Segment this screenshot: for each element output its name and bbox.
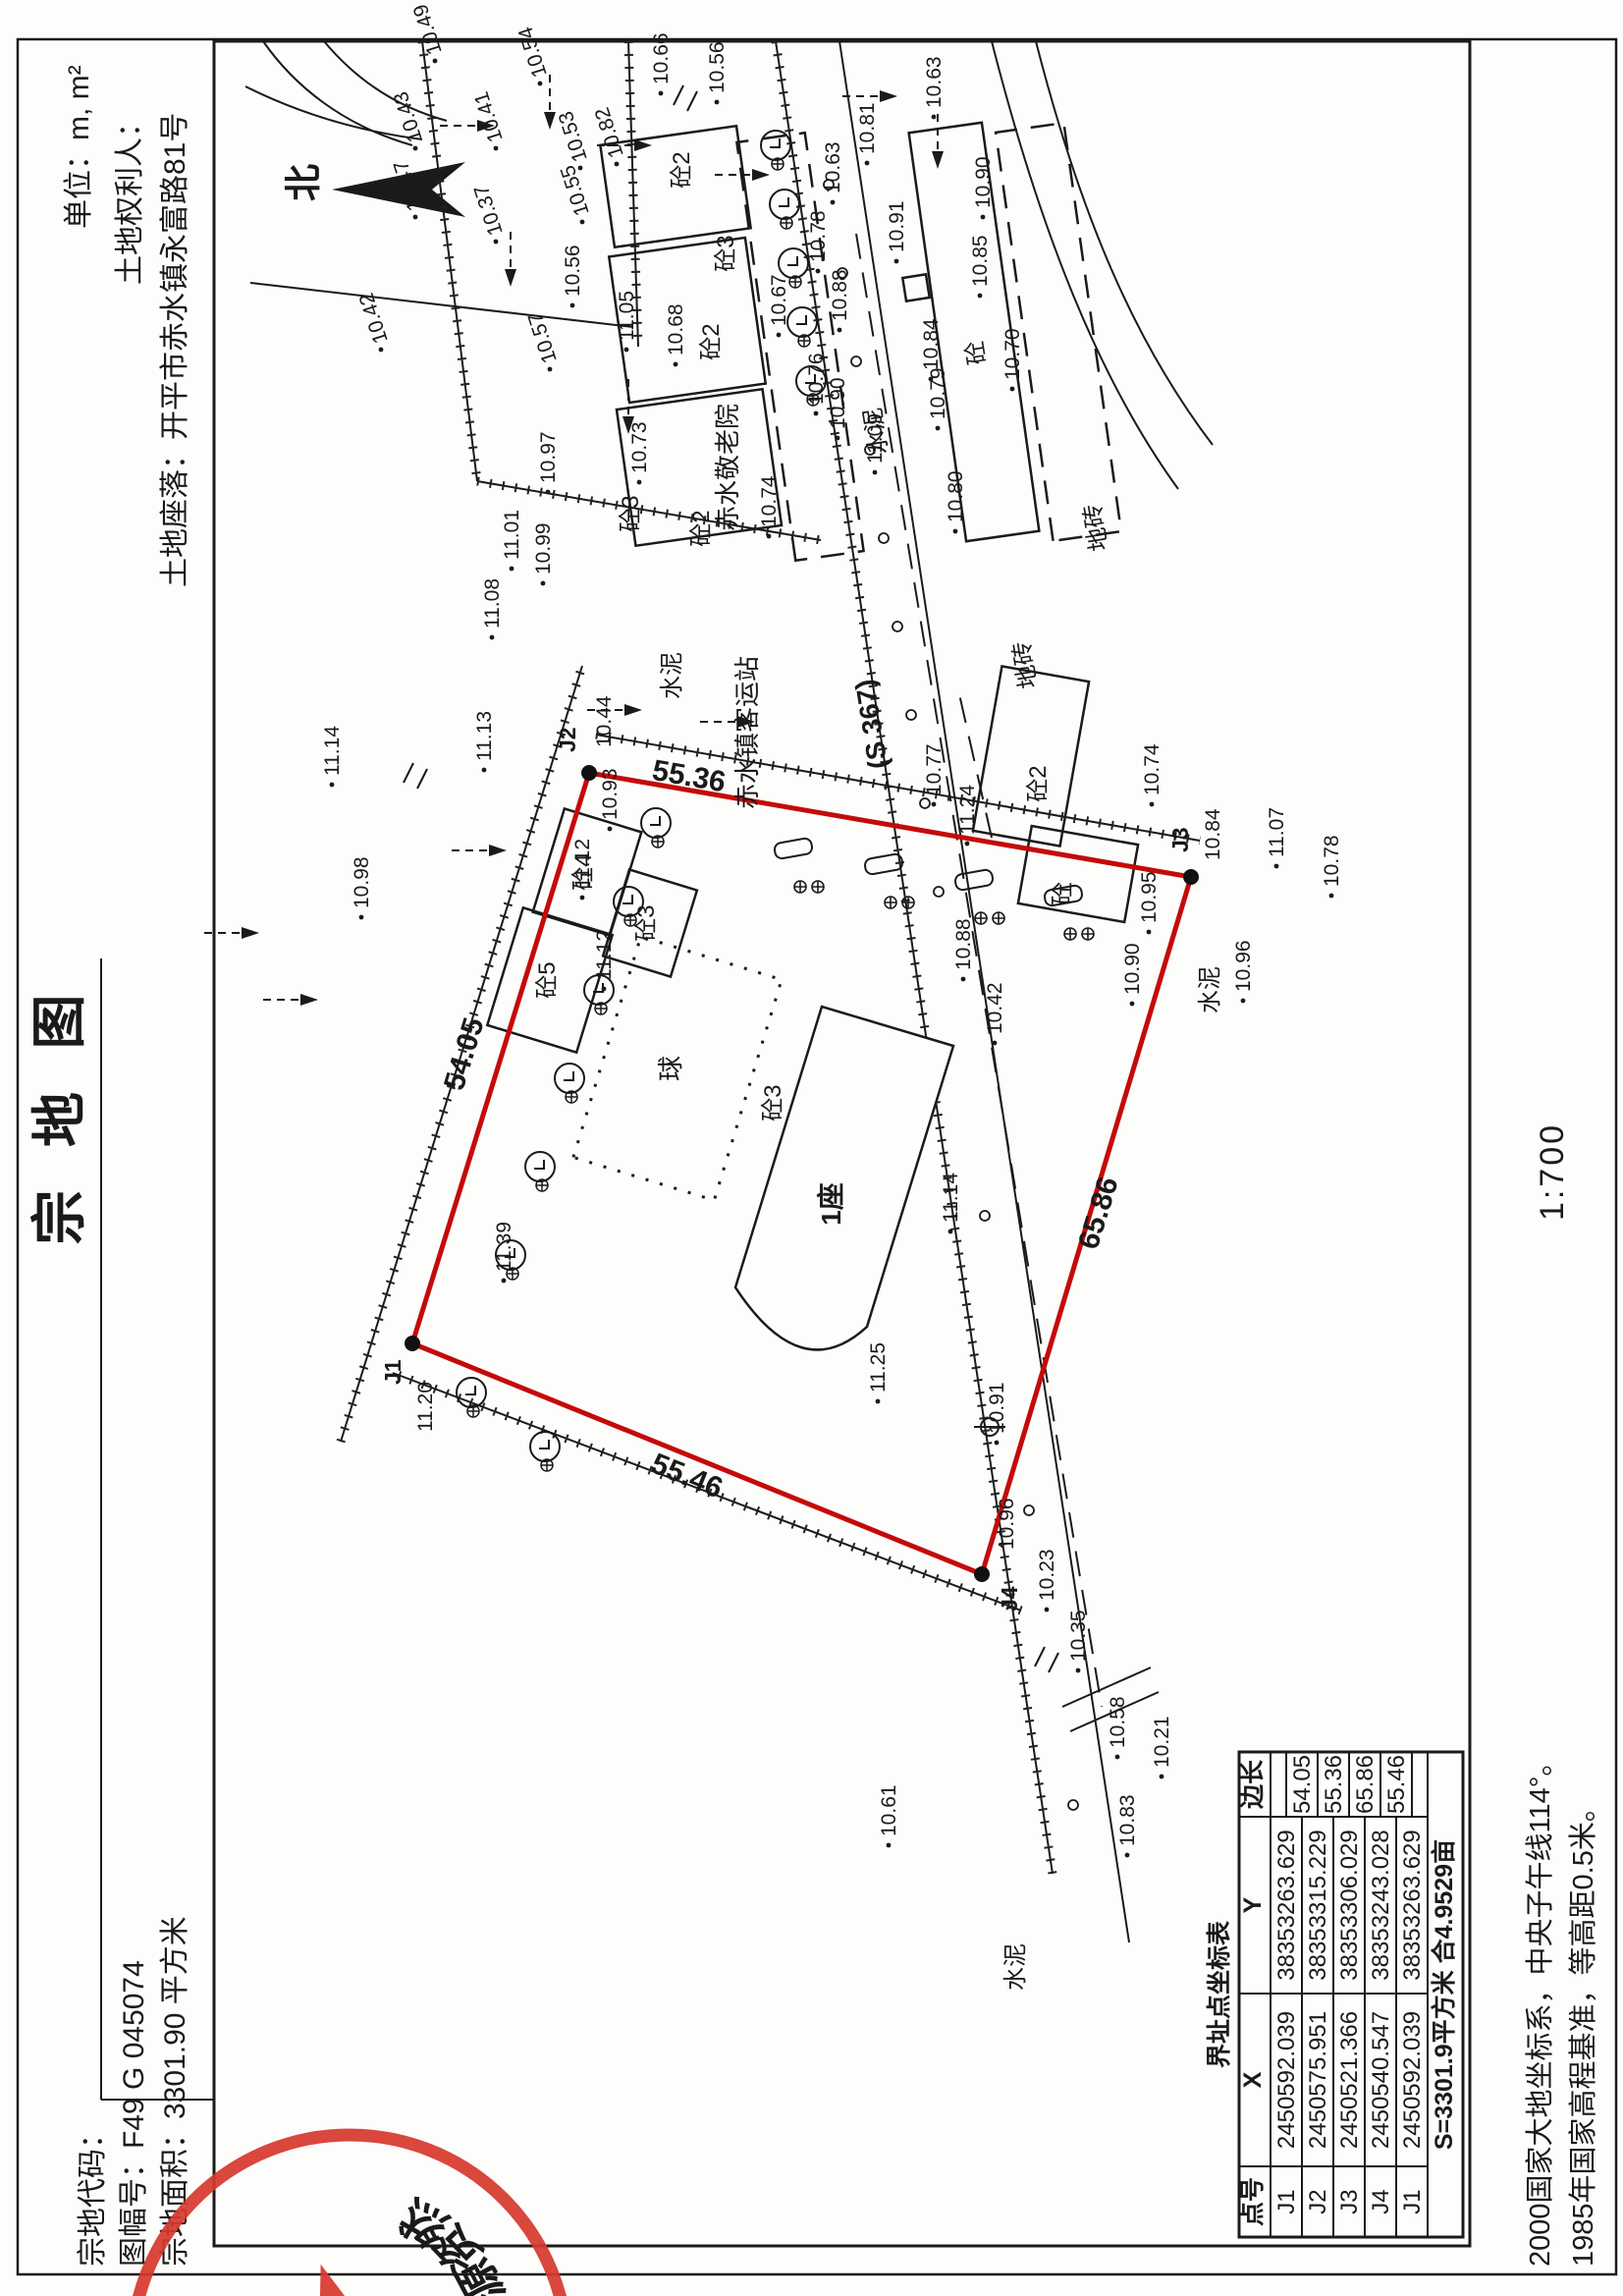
pole-symbol — [975, 912, 987, 924]
map-feature-label: 水泥 — [659, 652, 685, 699]
table-cell-point: J2 — [1305, 2189, 1331, 2214]
map-shape — [779, 197, 788, 206]
spot-elevation-value: 11.39 — [493, 1222, 515, 1272]
map-feature-label: 砼 — [1050, 882, 1076, 905]
map-shape — [836, 436, 840, 441]
spot-elevation-value: 11.01 — [501, 510, 523, 560]
pole-symbol — [1064, 928, 1076, 940]
edge-length-label: 55.36 — [650, 754, 729, 799]
map-shape — [993, 1041, 998, 1046]
spot-elevation-value: 10.37 — [470, 182, 508, 238]
pole-symbol — [1082, 928, 1094, 940]
datum-note-1: 2000国家大地坐标系，中央子午线114°。 — [1524, 1748, 1556, 2267]
tree-icon — [555, 1064, 584, 1103]
table-cell-y: 38353263.629 — [1273, 1830, 1300, 1981]
spot-elevation: 10.99 — [532, 522, 555, 585]
map-shape — [413, 146, 418, 151]
map-shape — [876, 1399, 881, 1404]
map-shape — [494, 146, 499, 151]
flow-arrow-icon — [544, 75, 556, 130]
spot-elevation: 10.74 — [1141, 743, 1163, 806]
spot-elevation-value: 10.90 — [1121, 943, 1144, 995]
pole-symbol — [902, 897, 914, 908]
spot-elevation: 10.97 — [537, 431, 560, 494]
spot-elevation-value: 10.84 — [920, 318, 943, 370]
map-line — [687, 91, 697, 111]
spot-elevation: 11.05 — [616, 291, 638, 352]
boundary-point-J3 — [1183, 869, 1199, 885]
tree-icon — [787, 307, 817, 347]
spot-elevation: 11.25 — [867, 1342, 890, 1403]
manhole-icon — [906, 710, 916, 720]
spot-elevation-value: 11.08 — [481, 578, 504, 629]
spot-elevation: 10.57 — [524, 309, 562, 371]
edge-length-label: 65.86 — [1072, 1173, 1125, 1252]
spot-elevation: 10.78 — [1321, 835, 1343, 898]
table-cell-point: J1 — [1399, 2189, 1426, 2214]
map-shape — [770, 190, 799, 219]
map-shape — [894, 259, 899, 264]
spot-elevation: 10.81 — [856, 102, 879, 165]
map-shape — [413, 215, 418, 220]
boundary-point-label: J4 — [997, 1586, 1022, 1612]
spot-elevation-value: 11.14 — [940, 1173, 962, 1223]
map-shape — [505, 269, 516, 287]
map-shape — [330, 783, 335, 788]
map-shape — [564, 1071, 573, 1080]
map-shape — [650, 816, 660, 825]
sheet-footer: 1:700 2000国家大地坐标系，中央子午线114°。 1985年国家高程基准… — [1524, 1122, 1599, 2267]
spot-elevation-value: 10.56 — [562, 245, 584, 297]
spot-elevation: 10.88 — [952, 918, 975, 981]
map-shape — [1329, 894, 1334, 899]
table-header: X — [1239, 2071, 1267, 2088]
official-stamp: 然资源局 — [132, 2135, 568, 2296]
map-feature-label: 砼2 — [669, 151, 695, 188]
spot-elevation: 10.53 — [555, 108, 592, 170]
map-shape — [1115, 1755, 1120, 1760]
spot-elevation-value: 11.13 — [473, 711, 496, 761]
spot-elevation-value: 10.85 — [969, 235, 992, 287]
map-shape — [767, 534, 772, 539]
map-shape — [1274, 864, 1279, 869]
map-shape — [634, 139, 652, 151]
spot-elevation: 10.73 — [628, 421, 651, 484]
boundary-point-elevation: 10.44 — [593, 695, 616, 747]
spot-elevation-value: 10.90 — [972, 156, 995, 208]
manhole-icon — [980, 1211, 990, 1221]
spot-elevation: 10.68 — [665, 303, 687, 366]
map-shape — [961, 977, 966, 982]
map-shape — [873, 470, 878, 475]
spot-elevation: 10.63 — [923, 56, 946, 119]
boundary-point-label: J3 — [1167, 827, 1193, 852]
edge-length-label: 54.05 — [438, 1013, 491, 1093]
map-shape — [932, 802, 937, 807]
spot-elevation-value: 10.98 — [351, 856, 373, 908]
map-line — [1036, 41, 1213, 445]
map-shape — [932, 151, 944, 169]
datum-note-2: 1985年国家高程基准，等高距0.5米。 — [1567, 1793, 1599, 2267]
map-shape — [489, 845, 507, 856]
map-shape — [674, 362, 678, 367]
map-shape — [379, 348, 384, 353]
table-cell-point: J4 — [1368, 2189, 1394, 2214]
map-shape — [622, 895, 632, 903]
table-cell-y: 38353315.229 — [1305, 1830, 1331, 1981]
spot-elevation-value: 10.41 — [470, 88, 508, 144]
map-shape — [615, 162, 620, 167]
spot-elevation-value: 10.67 — [768, 274, 790, 326]
map-feature-label: 砼2 — [698, 323, 725, 359]
spot-elevation-value: 10.61 — [878, 1784, 900, 1836]
manhole-icon — [1024, 1505, 1034, 1515]
map-shape — [814, 411, 819, 416]
map-feature-label: 1座 — [815, 1182, 846, 1226]
flow-arrow-icon — [842, 90, 897, 102]
spot-elevation-value: 10.95 — [1138, 871, 1161, 923]
map-shape — [490, 635, 495, 640]
map-shape — [570, 303, 575, 308]
spot-elevation-value: 10.93 — [599, 768, 622, 820]
spot-elevation-value: 10.78 — [807, 210, 830, 262]
map-shape — [555, 1064, 584, 1093]
bus-bay-symbol — [774, 838, 813, 859]
spot-elevation: 10.37 — [470, 182, 508, 244]
map-line — [417, 769, 427, 789]
spot-elevation-value: 10.43 — [390, 88, 427, 144]
manhole-icon — [879, 533, 889, 543]
spot-elevation: 11.01 — [501, 510, 523, 571]
table-header: 点号 — [1239, 2177, 1267, 2226]
map-shape — [1130, 1002, 1135, 1007]
map-line — [674, 85, 683, 105]
spot-elevation-value: 10.53 — [555, 108, 592, 164]
building-outline — [902, 274, 929, 301]
spot-elevation-value: 11.25 — [867, 1342, 890, 1393]
manhole-icon — [851, 356, 861, 366]
map-shape — [300, 994, 318, 1006]
map-shape — [530, 1432, 560, 1461]
map-sheet-number: 图幅号：F49 G 045074 — [118, 1960, 150, 2267]
map-shape — [538, 82, 543, 86]
spot-elevation: 10.41 — [470, 88, 508, 150]
map-shape — [580, 896, 585, 901]
boundary-point-elevation: 10.84 — [1202, 808, 1224, 860]
boundary-point-J1 — [405, 1336, 420, 1351]
tree-icon — [530, 1432, 560, 1471]
spot-elevation-value: 10.58 — [1107, 1696, 1129, 1748]
map-feature-label: 赤水敬老院 — [713, 404, 742, 531]
map-shape — [1125, 1853, 1130, 1858]
tree-icon — [641, 808, 671, 847]
map-shape — [777, 333, 782, 338]
map-shape — [978, 294, 983, 299]
spot-elevation-value: 10.91 — [986, 1382, 1008, 1434]
map-feature-label: 球 — [656, 1056, 685, 1081]
map-shape — [580, 220, 585, 225]
spot-elevation-value: 10.91 — [886, 200, 908, 252]
screenshot-viewport: 宗地代码： 图幅号：F49 G 045074 宗地面积：3301.90 平方米 … — [0, 0, 1623, 2296]
spot-elevation: 10.83 — [1116, 1794, 1139, 1857]
spot-elevation-value: 10.73 — [628, 421, 651, 473]
map-shape — [1150, 802, 1155, 807]
table-area-row: S=3301.9平方米 合4.9529亩 — [1430, 1839, 1458, 2150]
spot-elevation: 10.78 — [807, 210, 830, 273]
spot-elevation: 10.55 — [557, 162, 594, 224]
boundary-point-label: J2 — [555, 727, 580, 752]
spot-elevation-value: 10.80 — [945, 470, 967, 522]
map-feature-label: 砼 — [961, 339, 991, 366]
table-cell-point: J1 — [1273, 2189, 1300, 2214]
spot-elevation-value: 10.74 — [758, 475, 781, 527]
building-outline — [1018, 826, 1138, 922]
map-feature-label: 砼3 — [760, 1084, 786, 1121]
map-line — [404, 763, 413, 783]
boundary-point-J4 — [974, 1566, 990, 1582]
spot-elevation-value: 11.07 — [1266, 807, 1288, 857]
manhole-icon — [920, 798, 930, 808]
spot-elevation-value: 10.97 — [537, 431, 560, 483]
spot-elevation: 11.14 — [321, 726, 344, 788]
cadastral-sheet: 宗地代码： 图幅号：F49 G 045074 宗地面积：3301.90 平方米 … — [0, 0, 1623, 2296]
page-title: 宗 地 图 — [28, 980, 90, 1244]
spot-elevation: 10.98 — [351, 856, 373, 919]
stamp-star-icon — [256, 2265, 425, 2296]
map-shape — [715, 100, 720, 105]
unit-label: 单位：m, m² — [63, 65, 95, 229]
spot-elevation-value: 10.83 — [1116, 1794, 1139, 1846]
boundary-point-elevation: 11.20 — [414, 1382, 437, 1432]
spot-elevation-value: 10.96 — [1232, 940, 1255, 992]
table-cell-sidelength: 55.46 — [1383, 1755, 1410, 1814]
map-shape — [494, 240, 499, 245]
spot-elevation: 10.82 — [591, 104, 628, 166]
spot-elevation: 10.49 — [409, 1, 447, 63]
map-feature-label: 地砖 — [1009, 639, 1043, 690]
spot-elevation: 10.85 — [969, 235, 992, 298]
bus-bay-symbol — [954, 869, 994, 891]
map-shape — [1010, 387, 1015, 392]
spot-elevation-value: 10.68 — [665, 303, 687, 355]
map-shape — [936, 426, 941, 431]
spot-elevation-value: 10.63 — [923, 56, 946, 108]
flow-arrow-icon — [932, 114, 944, 169]
map-feature-label: 砼2 — [688, 510, 715, 546]
map-line — [1049, 1653, 1058, 1672]
map-shape — [534, 1160, 544, 1169]
manhole-icon — [934, 887, 944, 897]
table-cell-point: J3 — [1336, 2189, 1363, 2214]
spot-elevation-value: 10.76 — [805, 353, 828, 405]
map-shape — [887, 1843, 892, 1848]
spot-elevation: 10.79 — [927, 367, 949, 430]
map-shape — [482, 768, 487, 773]
map-shape — [953, 529, 958, 534]
map-shape — [641, 808, 671, 838]
spot-elevation: 10.58 — [1107, 1696, 1129, 1759]
map-shape — [510, 567, 514, 572]
spot-elevation: 10.76 — [805, 353, 828, 415]
spot-elevation: 10.67 — [768, 274, 790, 337]
spot-elevation-value: 10.63 — [822, 141, 844, 193]
map-shape — [624, 704, 642, 716]
map-shape — [433, 59, 438, 64]
map-shape — [546, 490, 551, 495]
map-shape — [1241, 999, 1246, 1004]
spot-elevation-value: 11.05 — [616, 291, 638, 341]
spot-elevation-value: 10.88 — [952, 918, 975, 970]
table-cell-x: 2450592.039 — [1399, 2011, 1426, 2149]
map-line — [1035, 1647, 1045, 1667]
spot-elevation: 10.96 — [1232, 940, 1255, 1003]
spot-elevation-value: 10.55 — [557, 162, 594, 218]
spot-elevation: 10.91 — [886, 200, 908, 263]
spot-elevation: 10.63 — [822, 141, 844, 204]
manhole-icon — [1068, 1800, 1078, 1810]
spot-elevation-value: 10.78 — [1321, 835, 1343, 887]
spot-elevation: 10.42 — [984, 982, 1006, 1045]
spot-elevation: 11.07 — [1266, 807, 1288, 868]
spot-elevation: 10.90 — [1121, 943, 1144, 1006]
boundary-point-elevation: 10.96 — [996, 1498, 1018, 1550]
map-shape — [242, 927, 259, 939]
sheet-canvas: 宗地代码： 图幅号：F49 G 045074 宗地面积：3301.90 平方米 … — [0, 0, 1623, 2296]
spot-elevation: 10.56 — [562, 245, 584, 307]
map-shape — [995, 1441, 1000, 1446]
table-cell-sidelength: 55.36 — [1321, 1755, 1347, 1814]
spot-elevation: 10.21 — [1151, 1716, 1173, 1778]
flow-arrow-icon — [204, 927, 259, 939]
spot-elevation-value: 10.90 — [827, 377, 849, 429]
spot-elevation-value: 10.66 — [650, 32, 673, 84]
map-feature-label: 砼5 — [534, 961, 561, 998]
table-cell-x: 2450540.547 — [1368, 2011, 1394, 2149]
map-line — [856, 234, 1102, 1707]
spot-elevation: 10.54 — [514, 24, 552, 85]
spot-elevation-value: 11.12 — [593, 930, 616, 980]
spot-elevation-value: 10.99 — [532, 522, 555, 574]
map-shape — [787, 307, 817, 337]
map-shape — [880, 90, 897, 102]
spot-elevation-value: 10.21 — [1151, 1716, 1173, 1768]
spot-elevation-value: 10.88 — [829, 269, 851, 321]
map-shape — [787, 256, 797, 265]
table-header: Y — [1239, 1896, 1267, 1913]
map-shape — [525, 1152, 555, 1181]
spot-elevation: 10.66 — [650, 32, 673, 95]
map-feature-label: 水泥 — [1002, 1943, 1029, 1991]
map-shape — [796, 315, 806, 324]
table-cell-sidelength: 65.86 — [1352, 1755, 1379, 1814]
map-shape — [539, 1440, 549, 1449]
map-shape — [548, 367, 553, 372]
flow-arrow-icon — [452, 845, 507, 856]
spot-elevation: 10.95 — [1138, 871, 1161, 934]
spot-elevation-value: 11.24 — [956, 785, 979, 835]
map-shape — [816, 269, 821, 274]
map-shape — [502, 1279, 507, 1284]
map-scale: 1:700 — [1534, 1122, 1571, 1221]
spot-elevation: 10.56 — [706, 41, 729, 104]
map-shape — [541, 581, 546, 586]
map-shape — [752, 169, 770, 181]
map-shape — [838, 328, 842, 333]
map-shape — [981, 215, 986, 220]
pole-symbol — [885, 897, 896, 908]
spot-elevation: 11.08 — [481, 578, 504, 639]
map-shape — [770, 138, 780, 147]
spot-elevation: 10.70 — [1001, 328, 1024, 391]
table-title: 界址点坐标表 — [1206, 1920, 1233, 2068]
map-feature-label: 水泥 — [1197, 966, 1223, 1013]
map-shape — [1147, 930, 1152, 935]
map-shape — [637, 480, 642, 485]
spot-elevation-value: 10.81 — [856, 102, 879, 154]
pole-symbol — [812, 881, 824, 893]
spot-elevation-value: 10.70 — [1001, 328, 1024, 380]
spot-elevation-value: 10.35 — [1067, 1610, 1090, 1662]
map-feature-label: 砼2 — [1025, 765, 1052, 801]
land-location: 土地座落：开平市赤水镇永富路81号 — [159, 113, 191, 587]
map-feature-label: 砼3 — [633, 904, 660, 941]
map-shape — [1045, 1608, 1050, 1613]
map-shape — [608, 827, 613, 832]
spot-elevation-value: 10.54 — [514, 24, 552, 80]
spot-elevation: 10.77 — [923, 743, 946, 806]
boundary-point-label: J1 — [380, 1359, 406, 1385]
tree-icon — [770, 190, 799, 229]
map-shape — [602, 987, 607, 992]
table-header: 边长 — [1239, 1759, 1267, 1809]
map-shape — [865, 161, 870, 166]
spot-elevation-value: 10.74 — [1141, 743, 1163, 795]
map-shape — [965, 842, 970, 847]
map-shape — [659, 91, 664, 96]
map-feature-label: 砼3 — [618, 495, 644, 531]
map-shape — [761, 131, 790, 160]
map-shape — [359, 915, 364, 920]
flow-arrow-icon — [505, 232, 516, 287]
map-feature-label: (S 367) — [849, 678, 893, 772]
north-label: 北 — [284, 164, 325, 201]
spot-elevation-value: 10.77 — [923, 743, 946, 795]
table-cell-x: 2450592.039 — [1273, 2011, 1300, 2149]
spot-elevation-value: 10.49 — [409, 1, 447, 57]
table-cell-x: 2450521.366 — [1336, 2011, 1363, 2149]
table-cell-sidelength: 54.05 — [1289, 1755, 1316, 1814]
spot-elevation: 10.90 — [972, 156, 995, 219]
map-shape — [1076, 1668, 1081, 1673]
map-shape — [465, 1386, 475, 1394]
flow-arrow-icon — [263, 994, 318, 1006]
table-cell-y: 38353263.629 — [1399, 1830, 1426, 1981]
spot-elevation: 11.14 — [940, 1173, 962, 1234]
rights-holder-label: 土地权利人： — [114, 108, 146, 285]
spot-elevation-value: 10.56 — [706, 41, 729, 93]
bus-bay-symbol — [864, 853, 903, 875]
pole-symbol — [993, 912, 1004, 924]
map-shape — [544, 112, 556, 130]
spot-elevations: 10.4910.5410.6610.5610.6310.4110.4310.81… — [321, 1, 1343, 1857]
map-feature-label: 赤水镇客运站 — [732, 656, 762, 809]
map-feature-label: 地砖 — [1080, 502, 1113, 553]
manhole-icon — [893, 622, 902, 631]
pole-symbol — [794, 881, 806, 893]
map-feature-label: 砼3 — [713, 235, 739, 271]
tree-icon — [525, 1152, 555, 1191]
spot-elevation: 11.13 — [473, 711, 496, 772]
